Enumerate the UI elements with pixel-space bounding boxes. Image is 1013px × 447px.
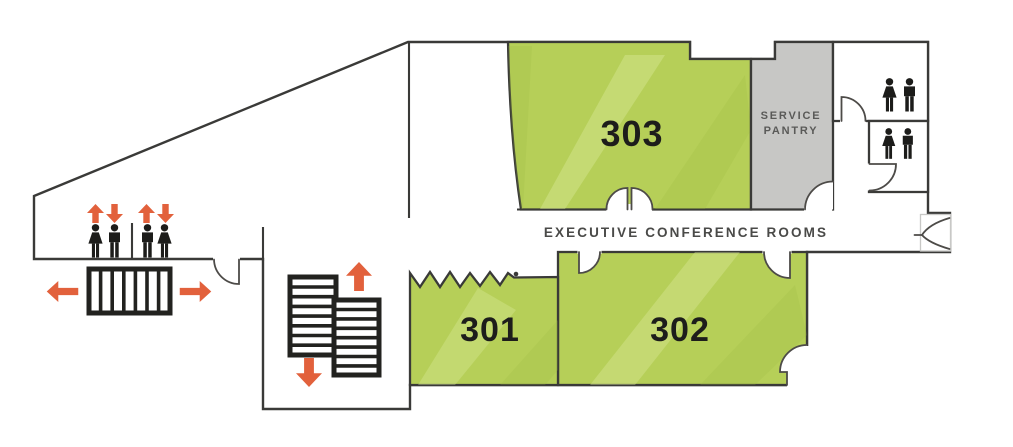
floor-plan-canvas: 303 301 302 SERVICE PANTRY EXECUTIVE CON… — [0, 0, 1013, 447]
pantry-label-line2: PANTRY — [764, 125, 819, 137]
room-301-label: 301 — [460, 311, 520, 349]
down-arrow-icon — [106, 204, 123, 223]
room-302-label: 302 — [650, 311, 710, 349]
door-elevator-lobby — [213, 257, 240, 285]
corridor-label: EXECUTIVE CONFERENCE ROOMS — [544, 225, 828, 240]
room-303-label: 303 — [600, 113, 663, 154]
down-arrow-icon — [296, 358, 322, 387]
stairs-icon — [290, 277, 379, 375]
door-main-entrance — [915, 215, 951, 252]
man-icon — [109, 224, 120, 257]
up-arrow-icon — [87, 204, 104, 223]
up-arrow-icon — [138, 204, 155, 223]
left-arrow-icon — [47, 281, 79, 302]
elevator-passengers — [88, 224, 171, 257]
stairwell — [290, 262, 379, 387]
pantry-label-line1: SERVICE — [761, 110, 822, 122]
right-arrow-icon — [180, 281, 212, 302]
elevator-direction-arrows — [87, 204, 174, 223]
woman-icon — [157, 224, 171, 257]
woman-icon — [88, 224, 102, 257]
man-icon — [142, 224, 153, 257]
down-arrow-icon — [157, 204, 174, 223]
escalator — [47, 269, 212, 313]
elevator-lobby — [87, 204, 174, 257]
up-arrow-icon — [346, 262, 372, 291]
floor-plan: 303 301 302 SERVICE PANTRY EXECUTIVE CON… — [0, 0, 1013, 447]
partition-end-marker — [514, 272, 519, 277]
